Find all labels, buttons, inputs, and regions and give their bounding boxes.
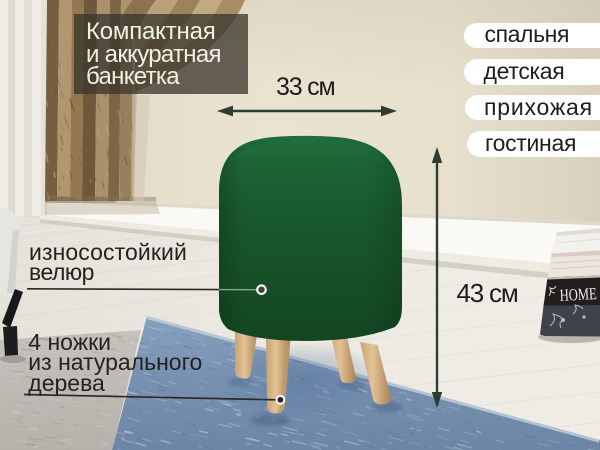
svg-text:HOME: HOME — [559, 284, 597, 305]
